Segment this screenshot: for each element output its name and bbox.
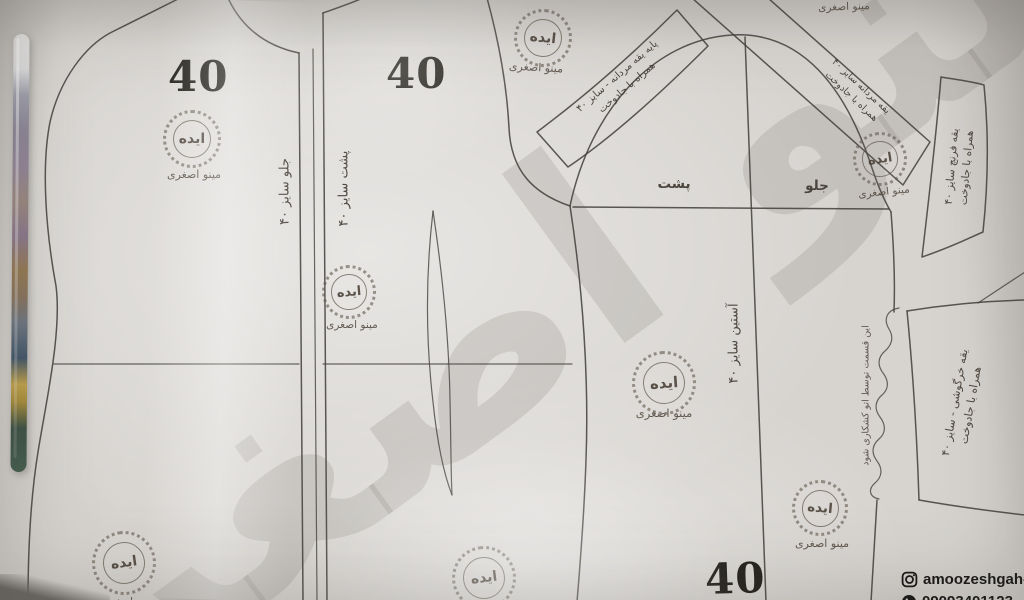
sleeve-front-label: جلو <box>795 178 839 194</box>
phone-row: 09093401123 <box>901 593 1013 600</box>
iron-ease-note: این قسمت توسط اتو کشکاری شود <box>861 316 872 476</box>
stamp-name: مینو اصغری <box>782 537 862 550</box>
stamp-brand: ایده <box>330 273 369 312</box>
sleeve-piece-label: آستین سایز ۴۰ <box>727 289 742 399</box>
sewing-pattern-photo: مینو اصغری 4 <box>0 0 1024 600</box>
sleeve-back-label: پشت <box>652 176 696 192</box>
back-piece-label: پشت سایز ۴۰ <box>337 134 352 244</box>
pen-object <box>10 34 29 472</box>
stamp-name: مینو اصغری <box>314 319 390 331</box>
instagram-row: amoozeshgah-id <box>901 571 1024 588</box>
ideh-stamp: ایده <box>163 110 221 168</box>
stamp-name: مینو اصغری <box>624 406 704 420</box>
phone-number: 09093401123 <box>922 593 1013 600</box>
phone-icon <box>901 594 917 600</box>
stamp-brand: ایده <box>173 120 211 158</box>
stamp-brand: ایده <box>860 139 901 180</box>
stamp-brand: ایده <box>100 539 148 587</box>
front-piece-label: جلو سایز ۴۰ <box>278 137 293 247</box>
instagram-handle: amoozeshgah-id <box>923 571 1024 588</box>
instagram-icon <box>901 571 918 588</box>
stamp-brand: ایده <box>522 17 564 59</box>
stamp-brand: ایده <box>460 554 507 600</box>
back-size-number: 40 <box>386 49 446 98</box>
stamp-brand: ایده <box>641 360 686 405</box>
stamp-name: مینو اصغری <box>810 0 878 14</box>
stamp-name: مینو اصغری <box>92 596 164 600</box>
stamp-brand: ایده <box>800 488 840 528</box>
front-size-number: 40 <box>168 52 228 101</box>
sleeve-size-number: 40 <box>704 553 766 600</box>
stamp-name: مینو اصغری <box>152 168 236 181</box>
